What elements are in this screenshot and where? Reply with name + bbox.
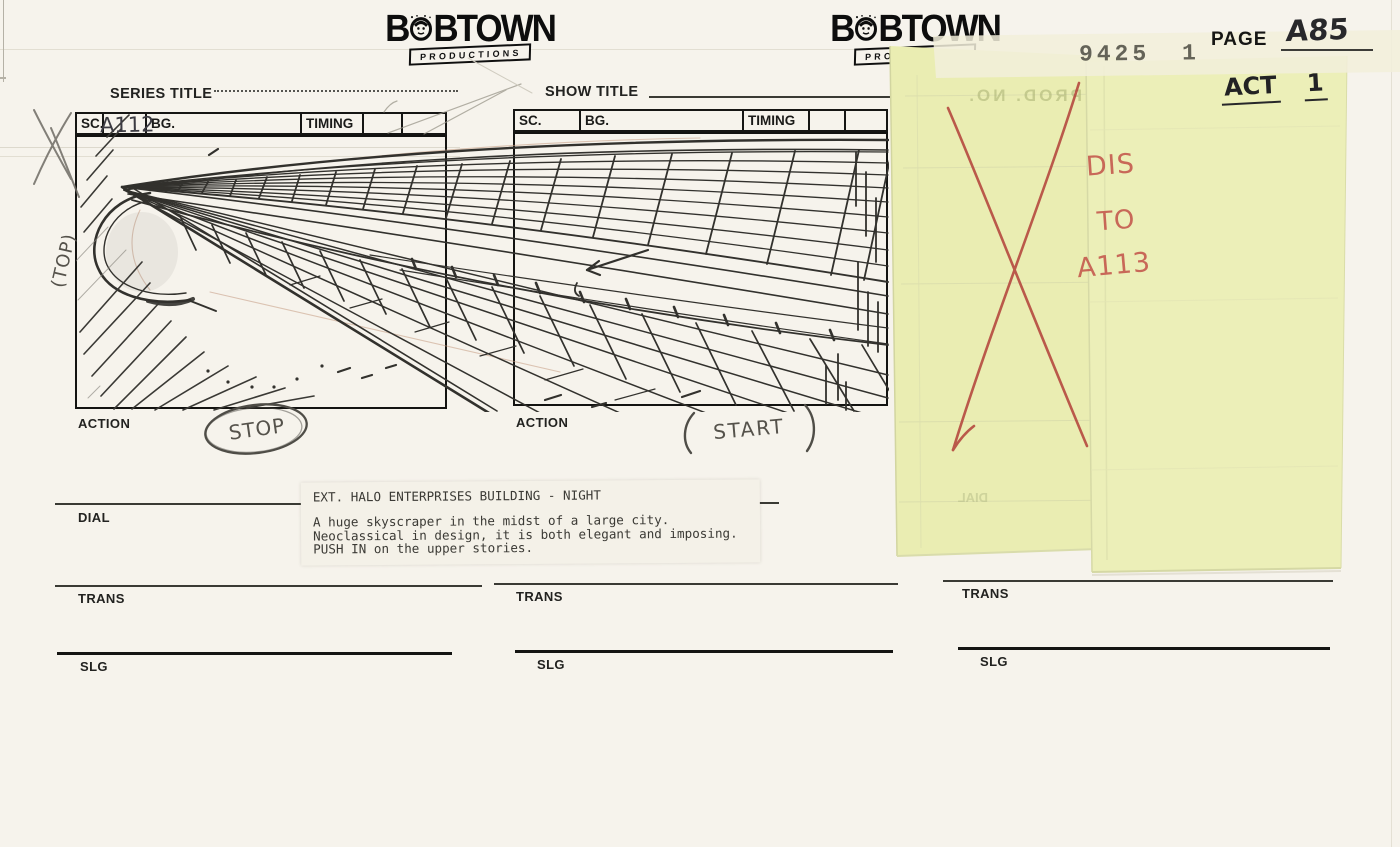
pencil-x-mark <box>34 110 79 197</box>
slg-label-1: SLG <box>80 659 108 674</box>
logo-banner: PRODUCTIONS <box>854 43 976 65</box>
dissolve-note-line1: DIS <box>1085 148 1136 182</box>
trans-label-3: TRANS <box>962 586 1009 601</box>
series-title-line <box>214 90 458 92</box>
stop-note-handwritten: STOP <box>223 413 292 446</box>
logo-text-end: BTOWN <box>433 12 555 46</box>
scene-description-line: PUSH IN on the upper stories. <box>313 540 750 557</box>
bleedthrough-prod-no-text: PROD. NO. <box>966 86 1082 105</box>
slg-label-2: SLG <box>537 657 565 672</box>
trans-line-1 <box>55 585 482 587</box>
slg-line-3 <box>958 647 1330 650</box>
dissolve-note-line2: TO <box>1096 205 1136 238</box>
logo-text-end: BTOWN <box>878 12 1000 46</box>
bobtown-logo: B BTOWN PRODUCTIONS <box>386 13 554 63</box>
page-label: PAGE <box>1211 29 1267 51</box>
production-number-stamp: 9425 1 <box>1079 40 1200 67</box>
slg-label-3: SLG <box>980 654 1008 669</box>
panel2-timing-label: TIMING <box>744 111 810 130</box>
trans-label-2: TRANS <box>516 589 563 604</box>
panel2-header: SC. BG. TIMING <box>513 109 888 132</box>
logo-text-start: B <box>385 12 408 46</box>
panel2-frame <box>513 132 888 406</box>
dial-label: DIAL <box>78 510 110 525</box>
panel1-frame <box>75 135 447 409</box>
show-title-line <box>649 96 890 98</box>
panel1-bg-label: BG. <box>147 114 302 133</box>
start-note-handwritten: START <box>702 413 796 445</box>
slg-line-1 <box>57 652 452 655</box>
red-x-mark <box>948 83 1087 450</box>
logo-face-icon <box>854 15 878 41</box>
act-number-handwritten: 1 <box>1303 68 1327 101</box>
panel2-spare-cell <box>810 111 846 130</box>
page-edge-line <box>3 0 4 82</box>
scene-number-handwritten: A112 <box>100 113 144 138</box>
logo-wordmark: B BTOWN <box>386 12 554 46</box>
bobtown-logo-2: B BTOWN PRODUCTIONS <box>831 13 999 63</box>
trans-line-3 <box>943 580 1333 582</box>
panel1-spare-cell <box>364 114 403 133</box>
page-edge-tick <box>0 77 6 79</box>
bleedthrough-dial-text: DIAL <box>958 490 988 505</box>
act-note: ACT 1 <box>1220 68 1327 101</box>
page-edge-line <box>1391 0 1392 847</box>
trans-line-2 <box>494 583 898 585</box>
yellow-sheet-right <box>1086 56 1347 575</box>
logo-face-icon <box>409 15 433 41</box>
page-number-handwritten: A85 <box>1285 12 1350 48</box>
logo-text-start: B <box>830 12 853 46</box>
slg-line-2 <box>515 650 893 653</box>
panel2-bg-label: BG. <box>581 111 744 130</box>
logo-wordmark: B BTOWN <box>831 12 999 46</box>
panel2-action-label: ACTION <box>516 415 568 430</box>
panel1-timing-label: TIMING <box>302 114 364 133</box>
trans-label-1: TRANS <box>78 591 125 606</box>
panel2-sc-label: SC. <box>515 111 581 130</box>
scene-slugline: EXT. HALO ENTERPRISES BUILDING - NIGHT <box>313 487 750 504</box>
dial-line-stub <box>757 502 779 504</box>
storyboard-scan-page: B BTOWN PRODUCTIONS B <box>0 0 1400 847</box>
series-title-label: SERIES TITLE <box>110 86 212 102</box>
act-label-handwritten: ACT <box>1220 71 1280 106</box>
dissolve-note-line3: A113 <box>1076 247 1152 284</box>
panel1-action-label: ACTION <box>78 416 130 431</box>
yellow-sheet-left: PROD. NO. DIAL <box>890 46 1127 556</box>
page-number-line <box>1281 49 1373 51</box>
script-note: EXT. HALO ENTERPRISES BUILDING - NIGHT A… <box>301 479 761 565</box>
show-title-label: SHOW TITLE <box>545 84 638 100</box>
panel2-spare-cell <box>846 111 886 130</box>
panel1-spare-cell <box>403 114 445 133</box>
logo-banner: PRODUCTIONS <box>409 43 531 65</box>
